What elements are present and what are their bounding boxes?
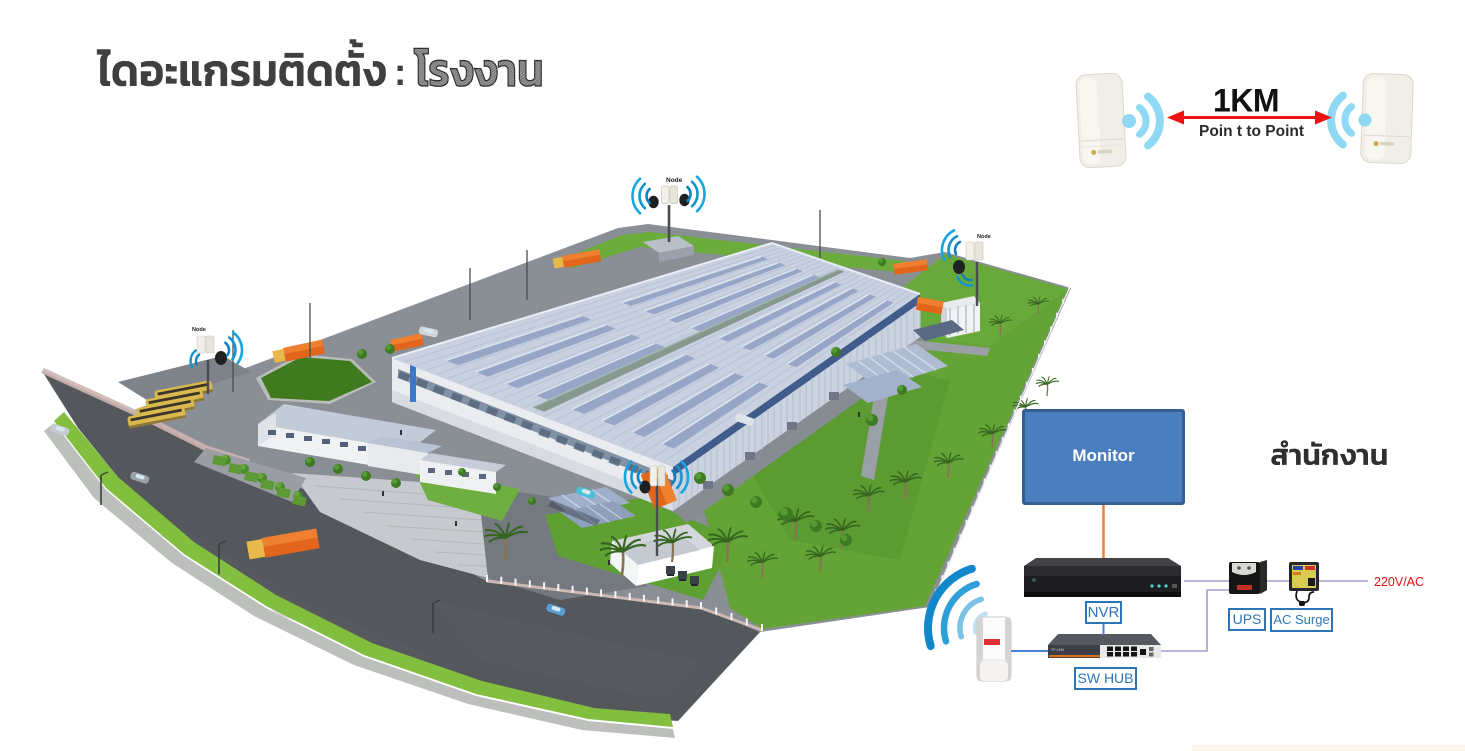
- svg-text:Poin t to Point: Poin t to Point: [1199, 123, 1304, 140]
- svg-text:TP-LINK: TP-LINK: [1051, 648, 1065, 652]
- svg-text:1KM: 1KM: [1213, 83, 1279, 119]
- svg-text:Node: Node: [192, 327, 206, 333]
- svg-text:Node: Node: [666, 177, 683, 184]
- svg-text:220V/AC: 220V/AC: [1374, 575, 1424, 589]
- svg-text:Node: Node: [977, 234, 991, 240]
